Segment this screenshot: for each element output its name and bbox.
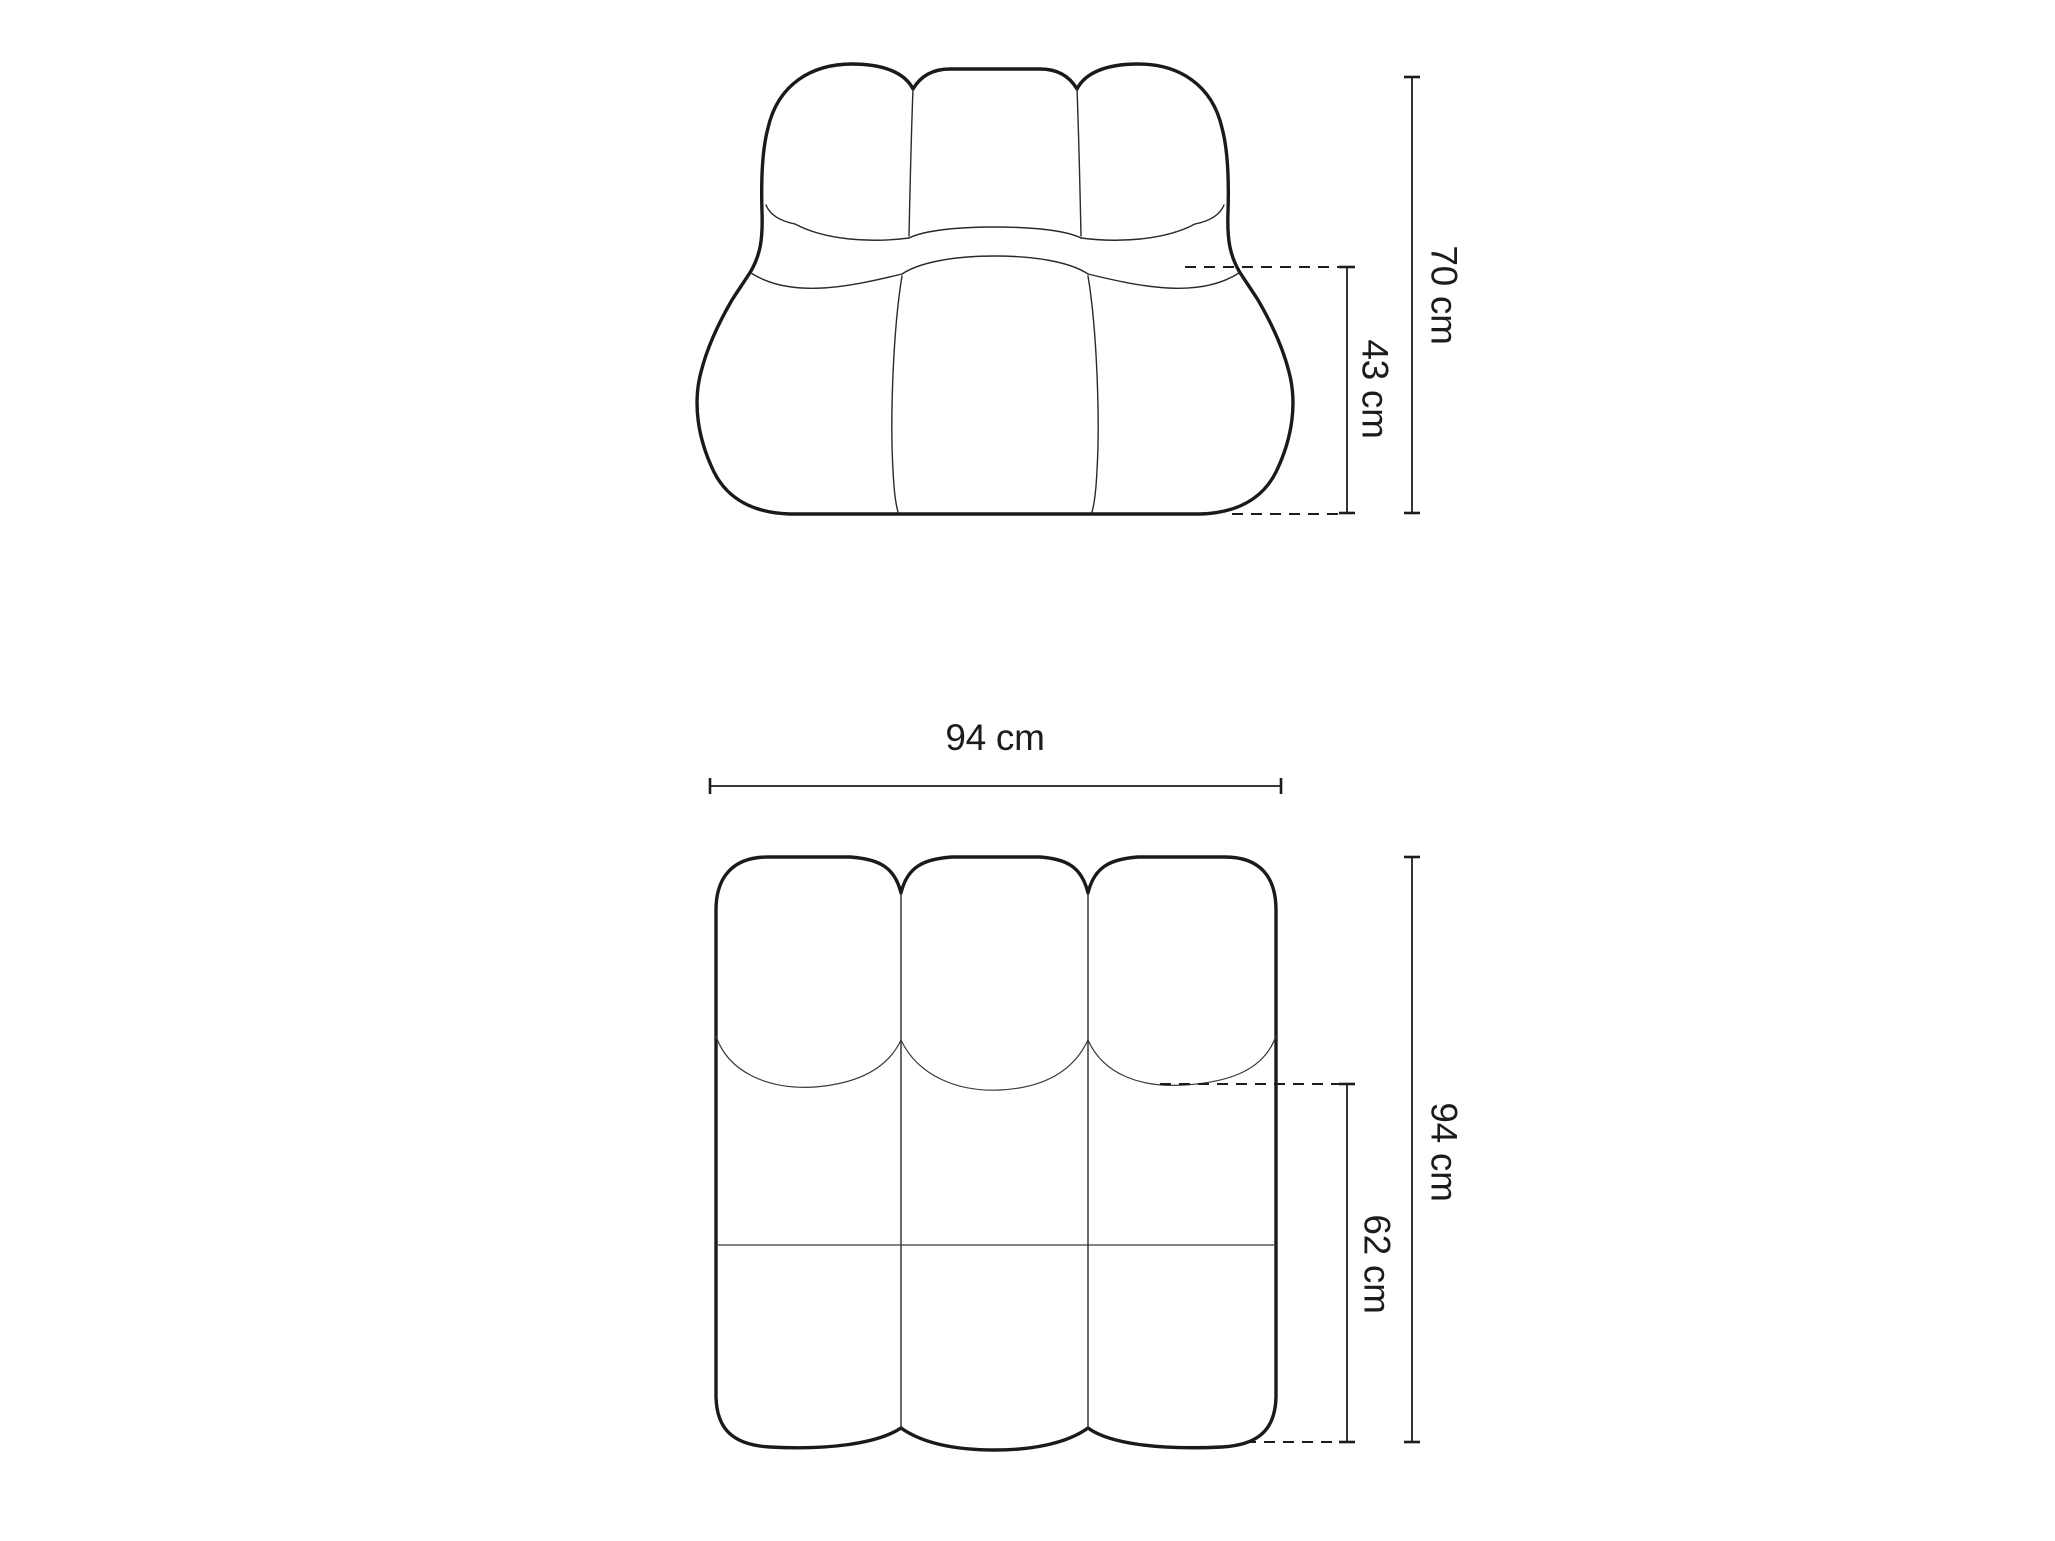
top-backrest-arc-center	[901, 1040, 1088, 1090]
front-mid-cushion-top-center	[909, 227, 1081, 238]
dimension-diagram-page: 43 cm 70 cm	[0, 0, 2055, 1541]
front-seat-top-left	[751, 273, 902, 288]
front-seat-height-label: 43 cm	[1355, 339, 1396, 438]
front-backrest-seam-right	[1077, 89, 1081, 236]
front-seat-side-left	[892, 276, 902, 512]
front-bubble-bottom-right	[1195, 205, 1224, 224]
front-mid-cushion-top-left	[795, 224, 909, 240]
front-seat-top-right	[1088, 273, 1239, 288]
sofa-dimension-diagram: 43 cm 70 cm	[0, 0, 2055, 1541]
front-outer-silhouette	[697, 64, 1293, 514]
front-bubble-bottom-left	[766, 205, 795, 224]
front-dim-seat-height: 43 cm	[1185, 267, 1396, 514]
front-seat-top-center	[902, 256, 1088, 274]
top-view: 94 cm 62 cm 94 cm	[710, 717, 1465, 1450]
front-overall-height-label: 70 cm	[1424, 245, 1465, 344]
top-dim-seat-depth: 62 cm	[1160, 1084, 1398, 1442]
top-seat-depth-label: 62 cm	[1357, 1214, 1398, 1313]
top-backrest-arc-left	[716, 1036, 901, 1087]
front-backrest-seam-left	[909, 89, 913, 236]
top-outer-outline	[716, 857, 1276, 1450]
top-backrest-arc-right	[1088, 1036, 1276, 1085]
top-overall-depth-label: 94 cm	[1424, 1102, 1465, 1201]
front-seat-side-right	[1088, 276, 1098, 512]
front-view: 43 cm 70 cm	[697, 64, 1464, 514]
top-dim-overall-width: 94 cm	[710, 717, 1281, 794]
front-mid-cushion-top-right	[1081, 224, 1195, 240]
top-dim-overall-depth: 94 cm	[1404, 857, 1465, 1442]
top-width-label: 94 cm	[945, 717, 1044, 758]
front-dim-overall-height: 70 cm	[1404, 77, 1465, 513]
